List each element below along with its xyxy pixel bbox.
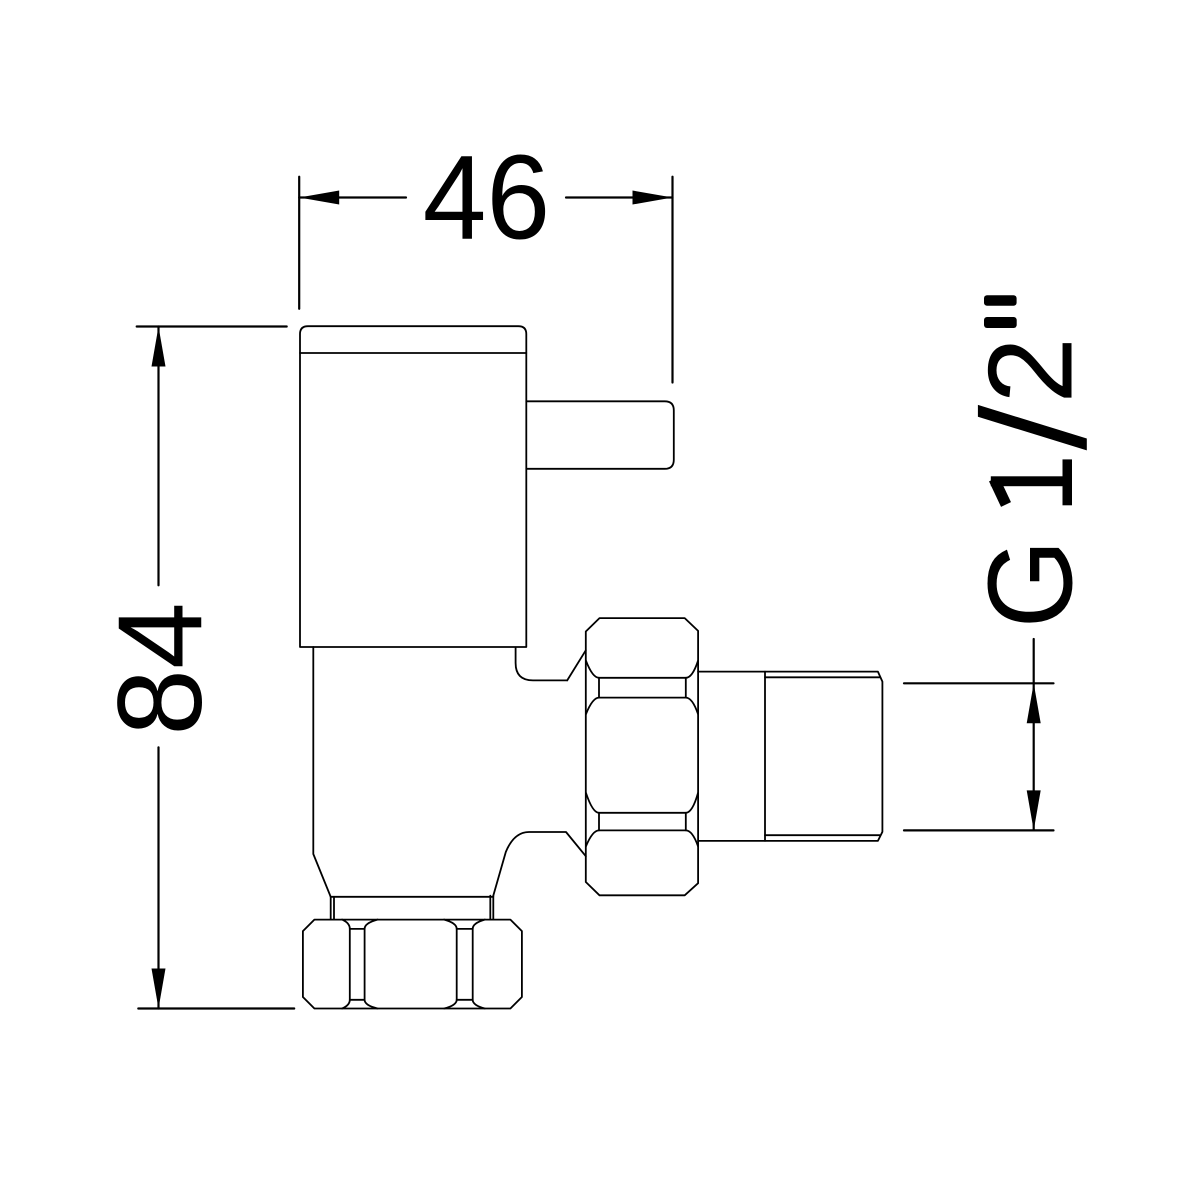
svg-text:G: G xyxy=(965,539,1098,628)
svg-text:84: 84 xyxy=(94,602,227,736)
svg-text:2: 2 xyxy=(965,337,1098,403)
svg-text:46: 46 xyxy=(423,132,550,265)
